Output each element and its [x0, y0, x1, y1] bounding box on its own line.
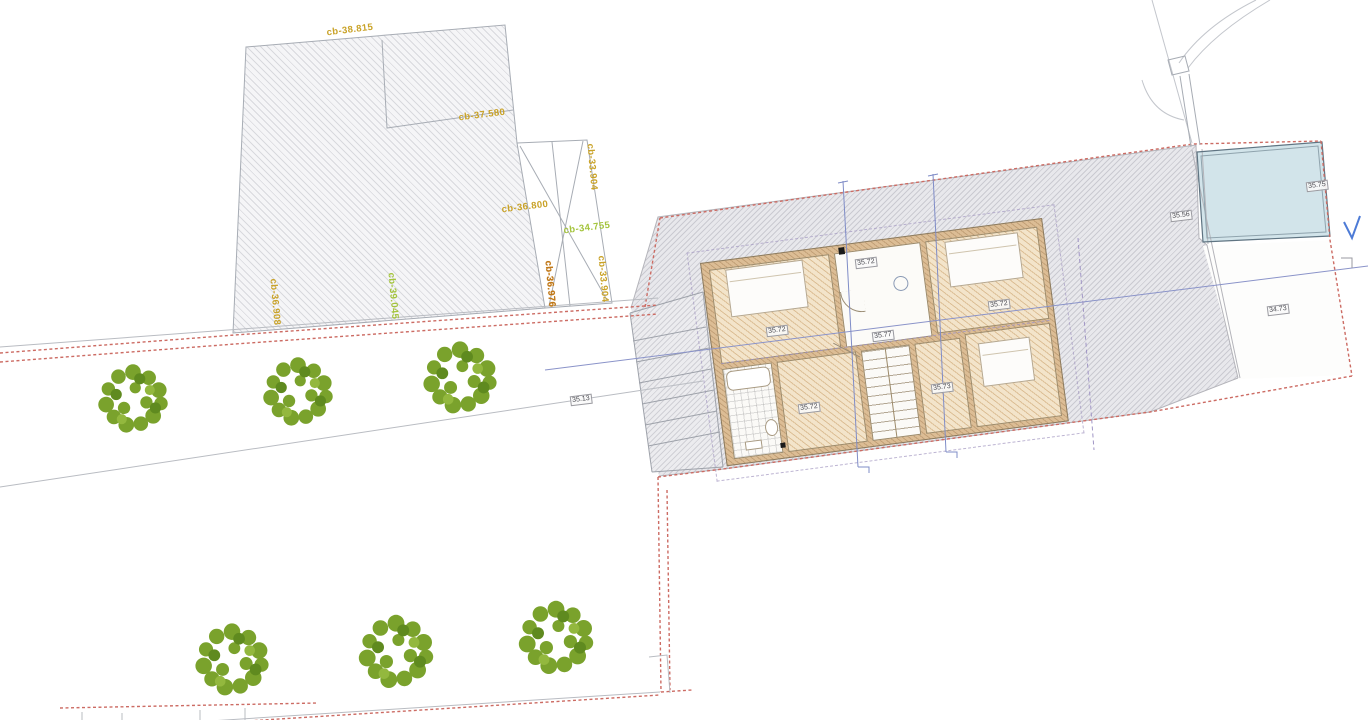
tree [98, 364, 167, 432]
tree [423, 341, 496, 413]
linework-layer [0, 0, 1368, 720]
exterior-stairs-treads [630, 292, 723, 472]
blue-v-marker [1344, 216, 1360, 238]
site-plan-canvas: cb-38.815 cb-37.580 cb-36.800 cb-34.755 … [0, 0, 1368, 720]
tree [359, 615, 433, 688]
boundary-red-dashed [0, 141, 1352, 720]
terrace-edges [631, 145, 1240, 476]
tree [263, 357, 332, 425]
section-lines [838, 174, 1094, 473]
pool-outline [1197, 142, 1330, 242]
tree [195, 623, 268, 695]
terrain-lines [0, 298, 703, 720]
tree [519, 601, 593, 674]
alignment-line [545, 266, 1368, 370]
trees-group [98, 341, 593, 695]
corner-bracket-marker [1341, 258, 1352, 268]
entrance-gate-lines [1142, 0, 1270, 147]
